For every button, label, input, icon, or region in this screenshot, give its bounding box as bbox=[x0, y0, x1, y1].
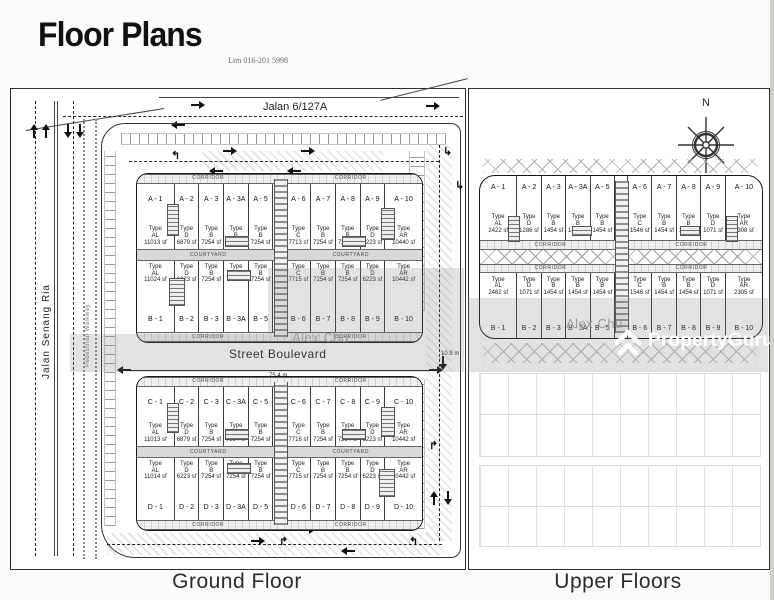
type-code: B bbox=[201, 271, 221, 278]
direction-arrow-icon bbox=[191, 101, 205, 109]
bottom-road-centerline bbox=[107, 544, 442, 545]
type-word: Type bbox=[313, 226, 333, 233]
courtyard-label: COURTYARD bbox=[332, 253, 369, 258]
unit-type-info: Type B 7254 sf bbox=[201, 461, 221, 481]
unit-area: 1454 sf bbox=[654, 290, 674, 297]
unit-area: 10442 sf bbox=[392, 437, 415, 444]
unit-id: D - 9 bbox=[365, 504, 380, 511]
watermark-agent-text: Alex Chu bbox=[292, 330, 349, 345]
type-code: D bbox=[177, 233, 197, 240]
unit-id: A - 9 bbox=[706, 184, 720, 191]
turn-arrow-icon bbox=[279, 537, 288, 548]
type-word: Type bbox=[251, 226, 271, 233]
unit-id: A - 8 bbox=[340, 196, 354, 203]
type-code: B bbox=[313, 430, 333, 437]
turn-arrow-icon bbox=[455, 181, 464, 192]
type-code: D bbox=[177, 430, 197, 437]
scan-edge bbox=[770, 0, 774, 600]
unit-area: 7254 sf bbox=[338, 474, 358, 481]
type-word: Type bbox=[363, 226, 383, 233]
unit-cell: Type C 7715 sf D - 6 bbox=[285, 458, 311, 520]
type-word: Type bbox=[201, 264, 221, 271]
top-road-centerline bbox=[63, 116, 463, 117]
unit-area: 10442 sf bbox=[392, 474, 415, 481]
type-word: Type bbox=[226, 226, 246, 233]
stairs-icon bbox=[508, 216, 520, 242]
unit-id: A - 3 bbox=[546, 184, 560, 191]
stairs-icon bbox=[227, 463, 251, 474]
type-code: AL bbox=[144, 271, 167, 278]
unit-id: A - 3A bbox=[568, 184, 587, 191]
unit-area: 7713 sf bbox=[288, 240, 308, 247]
type-word: Type bbox=[313, 461, 333, 468]
unit-id: A - 6 bbox=[633, 184, 647, 191]
unit-cell: A - 6 Type C 7713 sf bbox=[285, 184, 311, 250]
corridor-label: CORRIDOR bbox=[675, 243, 707, 248]
unit-type-info: Type D 6879 sf bbox=[177, 226, 197, 246]
unit-id: C - 2 bbox=[179, 399, 194, 406]
unit-type-info: Type AR 10440 sf bbox=[392, 226, 415, 246]
unit-area: 1546 sf bbox=[630, 290, 650, 297]
type-word: Type bbox=[177, 461, 197, 468]
unit-cell: A - 3 Type B 7254 sf bbox=[199, 184, 224, 250]
type-word: Type bbox=[338, 226, 358, 233]
floor-plan-sheet: Floor Plans Lim 016-201 5998 Jalan 6/127… bbox=[0, 0, 774, 600]
unit-area: 1454 sf bbox=[654, 228, 674, 235]
unit-id: A - 3A bbox=[226, 196, 245, 203]
type-word: Type bbox=[201, 226, 221, 233]
unit-cell: Type AL 11014 sf D - 1 bbox=[137, 458, 175, 520]
stairs-icon bbox=[680, 226, 700, 236]
type-code: C bbox=[630, 283, 650, 290]
type-word: Type bbox=[392, 226, 415, 233]
type-word: Type bbox=[144, 226, 167, 233]
type-word: Type bbox=[392, 461, 415, 468]
left-road-median bbox=[57, 101, 58, 556]
turn-arrow-icon bbox=[429, 441, 438, 452]
unit-area: 1454 sf bbox=[544, 290, 564, 297]
unit-id: A - 7 bbox=[316, 196, 330, 203]
unit-id: A - 5 bbox=[595, 184, 609, 191]
type-word: Type bbox=[488, 277, 508, 284]
corridor-label: CORRIDOR bbox=[335, 523, 367, 528]
unit-area: 11024 sf bbox=[144, 277, 167, 284]
unit-id: D - 3A bbox=[226, 504, 246, 511]
unit-id: D - 2 bbox=[179, 504, 194, 511]
type-word: Type bbox=[679, 277, 699, 284]
type-word: Type bbox=[488, 214, 508, 221]
top-road-label: Jalan 6/127A bbox=[263, 101, 327, 113]
corridor-label: CORRIDOR bbox=[192, 523, 224, 528]
unit-area: 1454 sf bbox=[592, 290, 612, 297]
stairs-icon bbox=[225, 429, 249, 440]
type-code: AR bbox=[392, 233, 415, 240]
stairs-icon bbox=[381, 407, 395, 437]
stairs-icon bbox=[726, 216, 738, 242]
type-word: Type bbox=[392, 423, 415, 430]
unit-type-info: Type B 1454 sf bbox=[679, 277, 699, 297]
type-code: D bbox=[177, 271, 197, 278]
north-label: N bbox=[694, 97, 718, 109]
type-word: Type bbox=[679, 214, 699, 221]
unit-area: 7254 sf bbox=[251, 474, 271, 481]
unit-cell: A - 2 Type D 1286 sf bbox=[517, 176, 541, 240]
unit-area: 1286 sf bbox=[519, 228, 539, 235]
type-word: Type bbox=[251, 423, 271, 430]
unit-type-info: Type B 1454 sf bbox=[592, 277, 612, 297]
unit-id: A - 6 bbox=[291, 196, 305, 203]
unit-cell: C - 3 Type B 7254 sf bbox=[199, 387, 224, 447]
type-code: B bbox=[544, 283, 564, 290]
stairs-icon bbox=[167, 403, 179, 433]
type-code: B bbox=[338, 468, 358, 475]
unit-type-info: Type D 6879 sf bbox=[177, 423, 197, 443]
unit-id: A - 8 bbox=[681, 184, 695, 191]
contact-note: Lim 016-201 5998 bbox=[228, 56, 288, 65]
unit-area: 7254 sf bbox=[201, 277, 221, 284]
unit-id: A - 10 bbox=[394, 196, 412, 203]
type-word: Type bbox=[544, 277, 564, 284]
type-code: B bbox=[654, 221, 674, 228]
unit-type-info: Type B 7254 sf bbox=[313, 461, 333, 481]
unit-type-info: Type AL 11013 sf bbox=[144, 226, 167, 246]
unit-id: D - 5 bbox=[253, 504, 268, 511]
page-title: Floor Plans bbox=[38, 16, 202, 55]
unit-type-info: Type AL 11024 sf bbox=[144, 264, 167, 284]
type-word: Type bbox=[144, 461, 167, 468]
type-word: Type bbox=[177, 423, 197, 430]
unit-type-info: Type AL 11014 sf bbox=[144, 461, 167, 481]
unit-area: 2422 sf bbox=[488, 228, 508, 235]
type-word: Type bbox=[177, 264, 197, 271]
direction-arrow-icon bbox=[251, 537, 265, 545]
corridor-label: CORRIDOR bbox=[192, 379, 224, 384]
type-word: Type bbox=[288, 423, 308, 430]
type-code: D bbox=[177, 468, 197, 475]
unit-area: 7254 sf bbox=[313, 240, 333, 247]
type-word: Type bbox=[592, 214, 612, 221]
unit-id: C - 10 bbox=[394, 399, 413, 406]
type-word: Type bbox=[654, 277, 674, 284]
unit-area: 1071 sf bbox=[519, 290, 539, 297]
unit-id: B - 5 bbox=[253, 316, 268, 323]
unit-area: 7254 sf bbox=[201, 240, 221, 247]
unit-cell: A - 5 Type B 1454 sf bbox=[591, 176, 615, 240]
type-code: B bbox=[679, 283, 699, 290]
unit-type-info: Type D 6223 sf bbox=[177, 461, 197, 481]
roof-brace-band bbox=[483, 159, 757, 173]
unit-type-info: Type AR 10442 sf bbox=[392, 423, 415, 443]
unit-area: 11013 sf bbox=[144, 437, 167, 444]
unit-type-info: Type AL 11013 sf bbox=[144, 423, 167, 443]
unit-type-info: Type D 1286 sf bbox=[519, 214, 539, 234]
type-word: Type bbox=[568, 277, 588, 284]
left-road-median bbox=[54, 101, 55, 556]
direction-arrow-icon bbox=[301, 147, 315, 155]
watermark-band bbox=[268, 268, 464, 334]
unit-type-info: Type B 7254 sf bbox=[313, 226, 333, 246]
unit-id: C - 5 bbox=[253, 399, 268, 406]
type-word: Type bbox=[144, 423, 167, 430]
type-code: B bbox=[201, 233, 221, 240]
lift-core bbox=[274, 382, 288, 525]
stairs-icon bbox=[572, 226, 592, 236]
type-code: B bbox=[654, 283, 674, 290]
type-word: Type bbox=[338, 461, 358, 468]
type-code: B bbox=[313, 468, 333, 475]
unit-id: D - 3 bbox=[204, 504, 219, 511]
stairs-icon bbox=[379, 469, 395, 497]
unit-type-info: Type B 7254 sf bbox=[201, 264, 221, 284]
type-code: C bbox=[288, 430, 308, 437]
stairs-icon bbox=[342, 236, 366, 247]
unit-cell: A - 9 Type D 1071 sf bbox=[701, 176, 725, 240]
unit-cell: C - 6 Type C 7716 sf bbox=[285, 387, 311, 447]
unit-id: D - 1 bbox=[148, 504, 163, 511]
unit-id: C - 7 bbox=[315, 399, 330, 406]
watermark-band bbox=[70, 334, 464, 372]
unit-area: 1071 sf bbox=[703, 290, 723, 297]
unit-type-info: Type AL 2462 sf bbox=[488, 277, 508, 297]
unit-type-info: Type AL 2422 sf bbox=[488, 214, 508, 234]
unit-area: 7254 sf bbox=[251, 240, 271, 247]
corridor-label: CORRIDOR bbox=[335, 176, 367, 181]
ground-block-cd: CORRIDOR CORRIDOR C - 1 Type AL 11013 sf bbox=[136, 376, 423, 531]
unit-id: D - 8 bbox=[340, 504, 355, 511]
corridor-label: CORRIDOR bbox=[335, 379, 367, 384]
unit-area: 1546 sf bbox=[630, 228, 650, 235]
type-code: B bbox=[313, 233, 333, 240]
unit-id: A - 2 bbox=[179, 196, 193, 203]
type-code: B bbox=[201, 430, 221, 437]
propertyguru-logo-icon bbox=[612, 326, 644, 358]
type-code: D bbox=[703, 221, 723, 228]
type-code: AL bbox=[144, 233, 167, 240]
unit-cell: C - 5 Type B 7254 sf bbox=[249, 387, 274, 447]
type-word: Type bbox=[519, 277, 539, 284]
unit-area: 1454 sf bbox=[568, 290, 588, 297]
unit-type-info: Type D 1071 sf bbox=[703, 214, 723, 234]
type-word: Type bbox=[201, 461, 221, 468]
unit-id: D - 7 bbox=[315, 504, 330, 511]
type-word: Type bbox=[630, 214, 650, 221]
unit-id: D - 10 bbox=[394, 504, 413, 511]
type-word: Type bbox=[288, 461, 308, 468]
unit-id: B - 3 bbox=[204, 316, 219, 323]
left-road-lane-line bbox=[73, 101, 74, 556]
type-code: AL bbox=[144, 468, 167, 475]
left-road-lane-line bbox=[35, 101, 36, 556]
type-code: D bbox=[519, 283, 539, 290]
type-word: Type bbox=[703, 277, 723, 284]
type-word: Type bbox=[201, 423, 221, 430]
unit-id: A - 7 bbox=[657, 184, 671, 191]
type-word: Type bbox=[654, 214, 674, 221]
unit-id: B - 3A bbox=[226, 316, 245, 323]
stairs-icon bbox=[167, 204, 179, 236]
stairs-icon bbox=[225, 236, 249, 247]
unit-type-info: Type D 1071 sf bbox=[519, 277, 539, 297]
type-word: Type bbox=[734, 277, 754, 284]
unit-area: 6223 sf bbox=[177, 474, 197, 481]
type-code: D bbox=[519, 221, 539, 228]
corridor-label: CORRIDOR bbox=[534, 243, 566, 248]
unit-type-info: Type B 7254 sf bbox=[251, 423, 271, 443]
unit-area: 10440 sf bbox=[392, 240, 415, 247]
unit-id: A - 1 bbox=[491, 184, 505, 191]
unit-type-info: Type C 7715 sf bbox=[288, 461, 308, 481]
direction-arrow-icon bbox=[76, 124, 84, 138]
unit-type-info: Type AR 10442 sf bbox=[392, 461, 415, 481]
unit-cell: Type D 6223 sf D - 2 bbox=[175, 458, 200, 520]
direction-arrow-icon bbox=[444, 491, 452, 505]
stairs-icon bbox=[227, 270, 251, 281]
unit-cell: Type B 7254 sf D - 3 bbox=[199, 458, 224, 520]
unit-area: 6879 sf bbox=[177, 240, 197, 247]
unit-area: 2305 sf bbox=[734, 290, 754, 297]
unit-area: 1454 sf bbox=[679, 290, 699, 297]
unit-type-info: Type B 1454 sf bbox=[544, 214, 564, 234]
unit-type-info: Type B 1454 sf bbox=[654, 214, 674, 234]
unit-cell: Type B 7254 sf B - 3 bbox=[199, 261, 224, 332]
type-word: Type bbox=[519, 214, 539, 221]
unit-area: 7715 sf bbox=[288, 474, 308, 481]
unit-area: 7254 sf bbox=[201, 437, 221, 444]
type-code: AL bbox=[488, 283, 508, 290]
corridor-label: CORRIDOR bbox=[534, 266, 566, 271]
direction-arrow-icon bbox=[426, 102, 440, 110]
type-word: Type bbox=[544, 214, 564, 221]
unit-type-info: Type B 7254 sf bbox=[313, 423, 333, 443]
unit-area: 11014 sf bbox=[144, 474, 167, 481]
unit-id: A - 3 bbox=[204, 196, 218, 203]
unit-id: C - 1 bbox=[148, 399, 163, 406]
unit-cell: A - 3 Type B 1454 sf bbox=[542, 176, 566, 240]
unit-cell: Type B 7254 sf D - 5 bbox=[249, 458, 274, 520]
courtyard-label: COURTYARD bbox=[332, 450, 369, 455]
unit-area: 7254 sf bbox=[251, 437, 271, 444]
unit-type-info: Type AR 2305 sf bbox=[734, 277, 754, 297]
type-word: Type bbox=[177, 226, 197, 233]
type-code: C bbox=[630, 221, 650, 228]
direction-arrow-icon bbox=[30, 124, 38, 138]
type-code: AL bbox=[144, 430, 167, 437]
direction-arrow-icon bbox=[223, 147, 237, 155]
unit-id: A - 5 bbox=[253, 196, 267, 203]
unit-cell: Type B 7254 sf D - 7 bbox=[311, 458, 336, 520]
ground-floor-caption: Ground Floor bbox=[10, 570, 464, 594]
unit-id: C - 3A bbox=[226, 399, 246, 406]
unit-type-info: Type B 7254 sf bbox=[201, 226, 221, 246]
type-word: Type bbox=[251, 461, 271, 468]
type-code: AR bbox=[392, 430, 415, 437]
type-word: Type bbox=[568, 214, 588, 221]
unit-type-info: Type B 1454 sf bbox=[654, 277, 674, 297]
unit-area: 7254 sf bbox=[313, 474, 333, 481]
type-code: C bbox=[288, 233, 308, 240]
unit-cell: A - 7 Type B 1454 sf bbox=[652, 176, 676, 240]
unit-area: 7254 sf bbox=[226, 474, 246, 481]
type-code: D bbox=[703, 283, 723, 290]
direction-arrow-icon bbox=[430, 491, 438, 505]
type-code: AR bbox=[392, 468, 415, 475]
upper-floors-caption: Upper Floors bbox=[468, 570, 768, 594]
type-code: B bbox=[544, 221, 564, 228]
unit-cell: A - 6 Type C 1546 sf bbox=[627, 176, 652, 240]
type-word: Type bbox=[288, 226, 308, 233]
top-road-edge bbox=[159, 97, 459, 98]
unit-area: 7254 sf bbox=[201, 474, 221, 481]
propertyguru-watermark-text: PropertyGuru bbox=[648, 330, 774, 352]
unit-area: 11013 sf bbox=[144, 240, 167, 247]
unit-area: 2462 sf bbox=[488, 290, 508, 297]
type-word: Type bbox=[144, 264, 167, 271]
unit-area: 6879 sf bbox=[177, 437, 197, 444]
unit-type-info: Type C 7716 sf bbox=[288, 423, 308, 443]
unit-area: 1454 sf bbox=[592, 228, 612, 235]
type-code: B bbox=[251, 468, 271, 475]
direction-arrow-icon bbox=[64, 124, 72, 138]
type-code: AL bbox=[488, 221, 508, 228]
type-word: Type bbox=[630, 277, 650, 284]
left-road-label: Jalan Senang Ria bbox=[41, 284, 52, 379]
type-word: Type bbox=[703, 214, 723, 221]
unit-id: B - 1 bbox=[148, 316, 163, 323]
unit-type-info: Type B 7254 sf bbox=[251, 461, 271, 481]
faint-plan-ghost bbox=[479, 373, 761, 548]
type-code: C bbox=[288, 468, 308, 475]
corridor-label: CORRIDOR bbox=[192, 176, 224, 181]
unit-area: 7254 sf bbox=[313, 437, 333, 444]
type-code: B bbox=[592, 283, 612, 290]
direction-arrow-icon bbox=[42, 124, 50, 138]
unit-id: A - 9 bbox=[365, 196, 379, 203]
direction-arrow-icon bbox=[341, 547, 355, 555]
unit-id: C - 9 bbox=[365, 399, 380, 406]
unit-cell: A - 5 Type B 7254 sf bbox=[249, 184, 274, 250]
unit-type-info: Type C 1546 sf bbox=[630, 277, 650, 297]
unit-id: A - 10 bbox=[735, 184, 753, 191]
courtyard-label: COURTYARD bbox=[190, 450, 227, 455]
unit-type-info: Type D 1071 sf bbox=[703, 277, 723, 297]
stairs-icon bbox=[342, 429, 366, 440]
unit-type-info: Type C 1546 sf bbox=[630, 214, 650, 234]
type-code: B bbox=[251, 233, 271, 240]
unit-type-info: Type C 7713 sf bbox=[288, 226, 308, 246]
unit-type-info: Type B 1454 sf bbox=[568, 277, 588, 297]
stairs-icon bbox=[169, 278, 185, 306]
type-code: B bbox=[592, 221, 612, 228]
unit-type-info: Type B 7254 sf bbox=[201, 423, 221, 443]
courtyard-label: COURTYARD bbox=[190, 253, 227, 258]
type-word: Type bbox=[363, 461, 383, 468]
parking-stalls-top bbox=[121, 133, 446, 145]
turn-arrow-icon bbox=[171, 151, 180, 162]
unit-type-info: Type B 7254 sf bbox=[338, 461, 358, 481]
unit-id: C - 3 bbox=[204, 399, 219, 406]
unit-id: B - 2 bbox=[179, 316, 194, 323]
unit-id: D - 6 bbox=[291, 504, 306, 511]
type-word: Type bbox=[592, 277, 612, 284]
turn-arrow-icon bbox=[409, 537, 418, 548]
unit-area: 1071 sf bbox=[703, 228, 723, 235]
stairs-icon bbox=[381, 208, 395, 240]
unit-type-info: Type B 7254 sf bbox=[251, 226, 271, 246]
unit-area: 7716 sf bbox=[288, 437, 308, 444]
type-word: Type bbox=[313, 423, 333, 430]
unit-cell: Type B 7254 sf D - 8 bbox=[336, 458, 361, 520]
unit-type-info: Type B 1454 sf bbox=[592, 214, 612, 234]
